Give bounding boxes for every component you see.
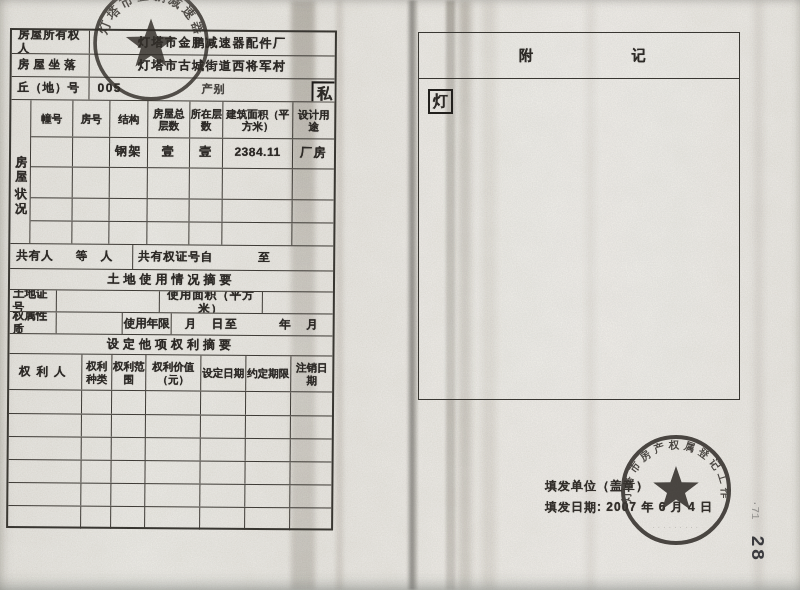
location-row: 房屋坐落 灯塔市古城街道西将军村	[12, 54, 335, 80]
category-label: 产别	[201, 83, 225, 96]
col-total-floors: 房屋总层数	[148, 101, 190, 137]
co-owner-suffix: 等 人	[76, 250, 114, 264]
co-owner-label: 共有人	[16, 249, 54, 263]
tenure-years-label: 使用年限	[123, 313, 172, 334]
margin-page-number: ·71 28	[746, 500, 768, 562]
co-cert-to-label: 至	[258, 251, 271, 264]
col-building-no: 幢号	[31, 100, 73, 136]
tenure-period-label: 年 月 日至 年 月 日	[172, 313, 333, 335]
col-area: 建筑面积（平方米）	[223, 102, 293, 138]
col-right-type: 权利种类	[82, 355, 112, 390]
seal-bottom-micro-text: · · · · · · · · ·	[653, 525, 699, 530]
empty-row	[9, 414, 332, 440]
appendix-note-char: 灯	[428, 89, 453, 114]
issue-date-label: 填发日期:	[545, 500, 602, 514]
appendix-title-right: 记	[632, 47, 648, 65]
owner-row: 房屋所有权人 灯塔市金鹏减速器配件厂	[12, 30, 335, 57]
plot-row: 丘（地）号 005 产别 私	[11, 77, 334, 103]
page-fold-line	[407, 0, 418, 590]
empty-row	[30, 198, 333, 223]
issuer-block: 填发单位（盖章） 填发日期: 2007 年 6 月 4 日	[545, 476, 713, 518]
col-designed-use: 设计用途	[293, 102, 334, 138]
land-cert-row: 土地证号 使用面积（平方米）	[10, 290, 333, 315]
owner-value: 灯塔市金鹏减速器配件厂	[90, 31, 335, 56]
empty-row	[9, 390, 332, 417]
co-cert-no-label: 共有权证号自	[138, 250, 213, 264]
rights-title: 设定他项权利摘要	[9, 334, 332, 356]
col-right-value: 权利价值（元）	[146, 355, 201, 390]
private-category-box: 私	[311, 81, 334, 101]
co-owner-row: 共有人 等 人 共有权证号自 至	[10, 244, 333, 272]
land-area-label: 使用面积（平方米）	[160, 291, 263, 313]
empty-row	[30, 221, 333, 245]
scan-streak	[336, 0, 343, 590]
rights-header-row: 权利人 权利种类 权利范围 权利价值（元） 设定日期 约定期限 注销日期	[9, 354, 332, 393]
housing-status-block: 房屋状况 幢号 房号 结构 房屋总层数 所在层数 建筑面积（平方米） 设计用途 …	[10, 100, 334, 247]
cell-structure: 钢架	[110, 138, 148, 167]
location-label: 房屋坐落	[12, 54, 90, 77]
cell-floor: 壹	[190, 138, 223, 167]
col-floor: 所在层数	[190, 101, 223, 137]
issue-date-value: 2007 年 6 月 4 日	[606, 500, 713, 514]
plot-label: 丘（地）号	[11, 77, 89, 100]
empty-row	[8, 483, 331, 509]
col-cancel-date: 注销日期	[291, 356, 332, 391]
appendix-title-row: 附 记	[419, 33, 739, 79]
col-set-date: 设定日期	[201, 356, 246, 391]
col-right-holder: 权利人	[9, 354, 82, 390]
appendix-box: 附 记 灯	[418, 32, 740, 400]
left-table: 房屋所有权人 灯塔市金鹏减速器配件厂 房屋坐落 灯塔市古城街道西将军村 丘（地）…	[6, 28, 337, 531]
col-room-no: 房号	[73, 101, 110, 137]
housing-status-data-row: 钢架 壹 壹 2384.11 厂房	[31, 137, 334, 169]
empty-row	[8, 460, 331, 486]
issuer-label: 填发单位（盖章）	[545, 476, 713, 497]
cell-area: 2384.11	[223, 138, 293, 167]
empty-row	[31, 167, 334, 201]
location-value: 灯塔市古城街道西将军村	[90, 55, 335, 79]
appendix-title-left: 附	[519, 47, 535, 65]
cell-building-no	[31, 137, 73, 166]
cell-designed-use: 厂房	[293, 139, 334, 168]
land-cert-label: 土地证号	[10, 290, 57, 311]
land-use-title: 土地使用情况摘要	[10, 269, 333, 292]
col-structure: 结构	[110, 101, 148, 137]
col-agreed-term: 约定期限	[246, 356, 291, 391]
col-right-scope: 权利范围	[112, 355, 146, 390]
land-use-title-row: 土地使用情况摘要	[10, 269, 333, 293]
plot-number: 005	[97, 82, 122, 96]
housing-status-header: 幢号 房号 结构 房屋总层数 所在层数 建筑面积（平方米） 设计用途	[31, 100, 334, 139]
rights-title-row: 设定他项权利摘要	[9, 334, 332, 357]
empty-row	[8, 506, 331, 531]
scanned-certificate-page: 房屋所有权人 灯塔市金鹏减速器配件厂 房屋坐落 灯塔市古城街道西将军村 丘（地）…	[0, 0, 800, 590]
empty-row	[9, 437, 332, 463]
faint-margin-mark: ·71	[749, 500, 761, 520]
tenure-row: 权属性质 使用年限 年 月 日至 年 月 日	[10, 312, 333, 337]
owner-label: 房屋所有权人	[12, 30, 90, 54]
cell-total-floors: 壹	[148, 138, 190, 167]
page-number-value: 28	[746, 535, 768, 562]
cell-room-no	[73, 137, 110, 166]
tenure-label: 权属性质	[10, 312, 57, 333]
housing-status-side-label: 房屋状况	[10, 100, 31, 243]
